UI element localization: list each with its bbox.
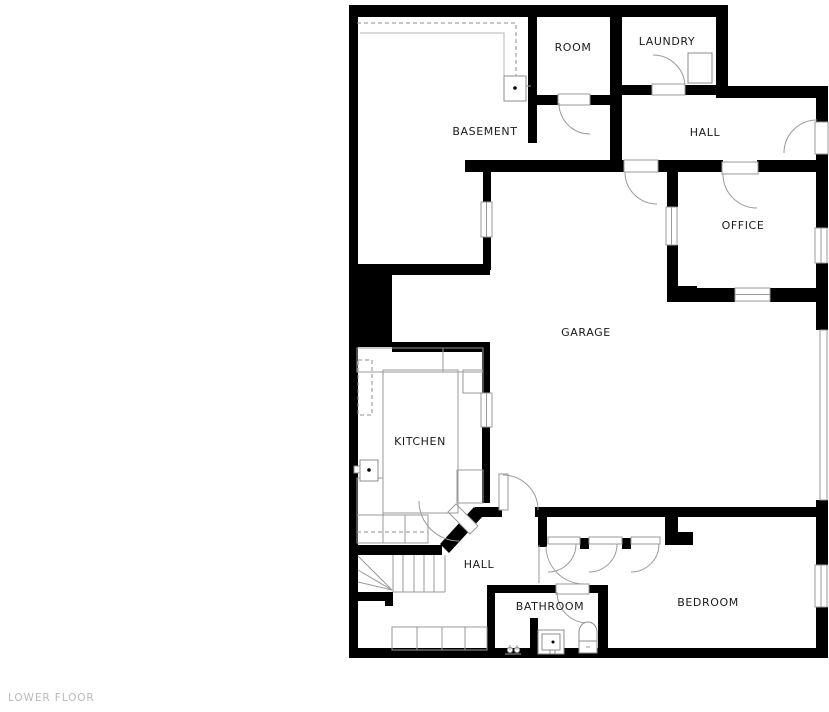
wall-top — [349, 5, 728, 17]
room-label-kitchen: KITCHEN — [394, 435, 446, 448]
water-heater-fixture — [504, 76, 531, 101]
wall-closet-post-2 — [622, 538, 631, 549]
door-hall-garage — [624, 160, 658, 204]
wall-laundry-right — [716, 5, 728, 90]
wall-closet-left-post — [538, 517, 547, 547]
floor-title: LOWER FLOOR — [8, 692, 95, 704]
wall-stairs-cap — [385, 592, 393, 606]
wall-bathroom-top-a — [487, 585, 557, 593]
wall-solid-block — [349, 270, 392, 347]
window-bedroom — [815, 565, 827, 607]
room-label-garage: GARAGE — [561, 326, 611, 339]
winder-tread-3 — [358, 582, 392, 590]
toilet-fixture — [579, 622, 597, 653]
wall-right-lower-b — [816, 607, 828, 658]
wall-room-bottom-a — [528, 95, 558, 105]
door-room — [558, 94, 590, 134]
room-label-basement: BASEMENT — [452, 125, 517, 138]
closet-doors — [548, 537, 660, 572]
counter-left — [357, 478, 383, 515]
room-label-laundry: LAUNDRY — [639, 35, 696, 48]
wall-bathroom-stub — [530, 618, 538, 653]
wall-hall-bottom-a — [465, 160, 625, 172]
window-office-bottom — [735, 288, 770, 301]
counter-right — [463, 370, 483, 393]
room-label-bedroom: BEDROOM — [677, 596, 739, 609]
wall-office-left-a — [667, 160, 678, 207]
windows — [481, 202, 827, 607]
wall-kitchen-bottom — [349, 545, 442, 555]
door-bedroom-corridor — [539, 545, 584, 584]
wall-laundry-bottom-b — [685, 85, 716, 95]
wall-right-seg3 — [816, 263, 828, 330]
wall-garage-bottom-b — [535, 507, 816, 517]
room-label-hall-upper: HALL — [690, 126, 721, 139]
wall-garage-nw-a — [483, 172, 491, 202]
wall-hall-top — [716, 86, 828, 98]
wall-hall-bottom-b — [657, 160, 723, 172]
window-basement-garage — [481, 202, 492, 237]
window-office-left — [666, 207, 677, 245]
window-office-right — [815, 228, 827, 263]
wall-right-lower-a — [816, 500, 828, 565]
bathroom-fixtures — [505, 622, 597, 654]
room-label-hall-lower: HALL — [464, 558, 495, 571]
wall-garage-bottom-a — [475, 507, 502, 517]
basement-dashed-line — [357, 23, 516, 76]
floor-plan-canvas: BASEMENT ROOM LAUNDRY HALL OFFICE GARAGE… — [0, 0, 829, 712]
sink-fixture — [538, 630, 564, 654]
garage-door-panel — [820, 330, 827, 500]
wall-kitchen-top — [392, 342, 490, 352]
door-garage-lower-hall — [499, 474, 538, 510]
floor-plan-drawing: BASEMENT ROOM LAUNDRY HALL OFFICE GARAGE… — [0, 0, 829, 712]
wall-laundry-bottom-a — [622, 85, 653, 95]
wall-room-laundry-divider — [610, 5, 622, 168]
room-labels: BASEMENT ROOM LAUNDRY HALL OFFICE GARAGE… — [394, 35, 764, 613]
counter-bottom-band — [357, 515, 428, 543]
door-entry — [784, 120, 828, 154]
wall-closet-end-b — [665, 532, 693, 545]
laundry-appliance — [688, 53, 712, 83]
wall-bathroom-right — [598, 585, 608, 658]
wall-office-bottom-b — [770, 288, 817, 302]
basement-ceiling-line — [360, 33, 504, 76]
doors — [419, 55, 828, 623]
wall-right-seg1 — [816, 98, 828, 123]
wall-bathroom-left — [487, 585, 495, 658]
door-laundry — [652, 55, 685, 95]
wall-office-bottom-a — [697, 288, 735, 302]
understair-storage — [392, 627, 487, 650]
sink-counter — [457, 470, 483, 503]
room-label-room: ROOM — [555, 41, 592, 54]
window-kitchen — [481, 393, 492, 427]
room-label-office: OFFICE — [722, 219, 765, 232]
appliance-dashed-outline — [358, 360, 372, 415]
wall-closet-post-1 — [580, 538, 589, 549]
wall-office-corner — [667, 286, 697, 302]
wall-hall-bottom-c — [757, 160, 816, 172]
wall-right-seg2 — [816, 153, 828, 228]
room-label-bathroom: BATHROOM — [516, 600, 584, 613]
wall-room-left — [528, 5, 537, 143]
door-office — [722, 162, 758, 208]
